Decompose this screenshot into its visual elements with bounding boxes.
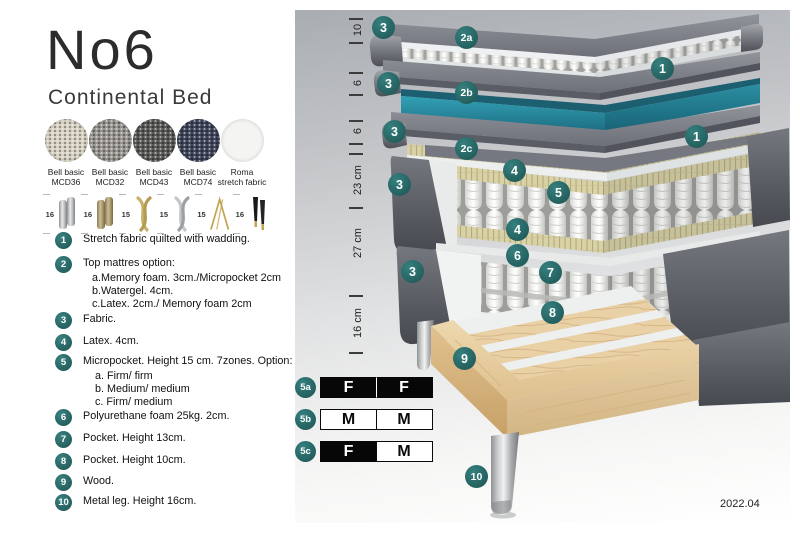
legend-item-9: 9 Wood.: [55, 474, 114, 491]
fabric-swatch-circle[interactable]: [133, 119, 176, 162]
firmness-badge-5b: 5b: [295, 409, 316, 430]
twist-gold-leg-icon: [132, 195, 156, 233]
leg-height: 16: [233, 210, 244, 219]
fabric-swatch-mcd36[interactable]: Bell basicMCD36: [44, 119, 88, 187]
legend-badge: 9: [55, 474, 72, 491]
firmness-row-5b: 5b M M: [295, 409, 433, 430]
callout-badge-3: 3: [377, 72, 400, 95]
firmness-cell: F: [320, 441, 377, 462]
page-subtitle: Continental Bed: [48, 86, 212, 110]
legend-text: Micropocket. Height 15 cm. 7zones. Optio…: [83, 354, 292, 369]
legend-sub-options: a.Memory foam. 3cm./Micropocket 2cmb.Wat…: [92, 272, 281, 311]
dimension-tick: [349, 72, 363, 74]
leg-height: 15: [157, 210, 168, 219]
dimension-tick: [349, 42, 363, 44]
dimension-label-27cm: 27 cm: [352, 228, 364, 258]
fabric-swatch-label: Bell basicMCD36: [48, 167, 84, 187]
fabric-swatch-circle[interactable]: [177, 119, 220, 162]
firmness-cell: M: [320, 409, 377, 430]
leg-height: 15: [195, 210, 206, 219]
fabric-swatches: Bell basicMCD36 Bell basicMCD32 Bell bas…: [44, 119, 264, 187]
legend-item-10: 10 Metal leg. Height 16cm.: [55, 494, 196, 511]
callout-badge-1: 1: [651, 57, 674, 80]
legend-text: Pocket. Height 10cm.: [83, 453, 186, 468]
leg-option-twist-gold[interactable]: 15: [119, 192, 157, 236]
dimension-tick: [349, 153, 363, 155]
callout-badge-8: 8: [541, 301, 564, 324]
dimension-tick: [349, 352, 363, 354]
firmness-cell: F: [376, 377, 433, 398]
firmness-row-5c: 5c F M: [295, 441, 433, 462]
dimension-tick: [349, 94, 363, 96]
cone-black-leg-icon: [246, 195, 270, 233]
legend-badge: 1: [55, 232, 72, 249]
legend-text: Pocket. Height 13cm.: [83, 431, 186, 446]
fabric-swatch-label: Romastretch fabric: [218, 167, 267, 187]
firmness-row-5a: 5a F F: [295, 377, 433, 398]
legend-item-8: 8 Pocket. Height 10cm.: [55, 453, 186, 470]
firmness-cell: M: [376, 441, 433, 462]
legend-badge: 5: [55, 354, 72, 371]
firmness-badge-5c: 5c: [295, 441, 316, 462]
fabric-swatch-mcd74[interactable]: Bell basicMCD74: [176, 119, 220, 187]
callout-badge-2c: 2c: [455, 137, 478, 160]
dimension-tick: [349, 295, 363, 297]
product-sheet: No6 Continental Bed Bell basicMCD36 Bell…: [0, 0, 800, 533]
fabric-swatch-label: Bell basicMCD43: [136, 167, 172, 187]
version-stamp: 2022.04: [720, 498, 760, 510]
fabric-swatch-circle[interactable]: [221, 119, 264, 162]
legend-text: Latex. 4cm.: [83, 334, 139, 349]
callout-badge-10: 10: [465, 465, 488, 488]
callout-badge-4: 4: [503, 159, 526, 182]
leg-option-hairpin-gold[interactable]: 15: [195, 192, 233, 236]
leg-option-cone-black[interactable]: 16: [233, 192, 271, 236]
cylinder-brass-leg-icon: [94, 195, 118, 233]
legend-text: Top mattres option:: [83, 256, 281, 271]
legend-item-4: 4 Latex. 4cm.: [55, 334, 139, 351]
leg-height: 16: [43, 210, 54, 219]
legend-item-6: 6 Polyurethane foam 25kg. 2cm.: [55, 409, 229, 426]
leg-option-cylinder-brass[interactable]: 16: [81, 192, 119, 236]
fabric-swatch-mcd43[interactable]: Bell basicMCD43: [132, 119, 176, 187]
dimension-label-23cm: 23 cm: [352, 165, 364, 195]
dimension-label-6cm-a: 6: [352, 80, 364, 86]
legend-badge: 7: [55, 431, 72, 448]
callout-badge-2b: 2b: [455, 81, 478, 104]
leg-options: 16 16 15 15: [43, 192, 271, 236]
callout-badge-1: 1: [685, 125, 708, 148]
callout-badge-3: 3: [401, 260, 424, 283]
exploded-bed-diagram: 10 6 6 23 cm 27 cm 16 cm 3 2a 1 3 2b 3 2…: [295, 10, 790, 523]
legend-badge: 10: [55, 494, 72, 511]
dimension-label-6cm-b: 6: [352, 128, 364, 134]
callout-badge-6: 6: [506, 244, 529, 267]
leg-height: 15: [119, 210, 130, 219]
hairpin-leg-icon: [208, 195, 233, 233]
fabric-swatch-circle[interactable]: [45, 119, 88, 162]
legend-badge: 3: [55, 312, 72, 329]
dimension-label-10cm: 10: [352, 24, 364, 36]
leg-option-cylinder-silver[interactable]: 16: [43, 192, 81, 236]
dimension-tick: [349, 207, 363, 209]
cylinder-silver-leg-icon: [56, 195, 80, 233]
legend-badge: 4: [55, 334, 72, 351]
legend-text: Wood.: [83, 474, 114, 489]
fabric-swatch-label: Bell basicMCD74: [180, 167, 216, 187]
callout-badge-5: 5: [547, 181, 570, 204]
callout-badge-2a: 2a: [455, 26, 478, 49]
twist-silver-leg-icon: [170, 195, 194, 233]
legend-text: Fabric.: [83, 312, 116, 327]
fabric-swatch-roma[interactable]: Romastretch fabric: [220, 119, 264, 187]
legend-badge: 2: [55, 256, 72, 273]
legend-text: Polyurethane foam 25kg. 2cm.: [83, 409, 229, 424]
leg-height: 16: [81, 210, 92, 219]
callout-badge-3: 3: [383, 120, 406, 143]
callout-badge-9: 9: [453, 347, 476, 370]
legend-item-1: 1 Stretch fabric quilted with wadding.: [55, 232, 250, 249]
callout-badge-7: 7: [539, 261, 562, 284]
fabric-swatch-circle[interactable]: [89, 119, 132, 162]
dimension-label-16cm: 16 cm: [352, 308, 364, 338]
legend-badge: 6: [55, 409, 72, 426]
fabric-swatch-mcd32[interactable]: Bell basicMCD32: [88, 119, 132, 187]
legend-item-5: 5 Micropocket. Height 15 cm. 7zones. Opt…: [55, 354, 292, 409]
dimension-tick: [349, 143, 363, 145]
firmness-cell: F: [320, 377, 377, 398]
legend-badge: 8: [55, 453, 72, 470]
callout-badge-3: 3: [372, 16, 395, 39]
dimension-tick: [349, 18, 363, 20]
legend-text: Stretch fabric quilted with wadding.: [83, 232, 250, 247]
fabric-swatch-label: Bell basicMCD32: [92, 167, 128, 187]
page-title: No6: [46, 22, 158, 78]
legend-item-2: 2 Top mattres option: a.Memory foam. 3cm…: [55, 256, 281, 311]
legend-sub-options: a. Firm/ firmb. Medium/ mediumc. Firm/ m…: [95, 370, 292, 409]
legend-item-3: 3 Fabric.: [55, 312, 116, 329]
legend-text: Metal leg. Height 16cm.: [83, 494, 196, 509]
firmness-badge-5a: 5a: [295, 377, 316, 398]
legend-item-7: 7 Pocket. Height 13cm.: [55, 431, 186, 448]
firmness-cell: M: [376, 409, 433, 430]
dimension-tick: [349, 120, 363, 122]
leg-option-twist-silver[interactable]: 15: [157, 192, 195, 236]
callout-badge-4: 4: [506, 218, 529, 241]
callout-badge-3: 3: [388, 173, 411, 196]
